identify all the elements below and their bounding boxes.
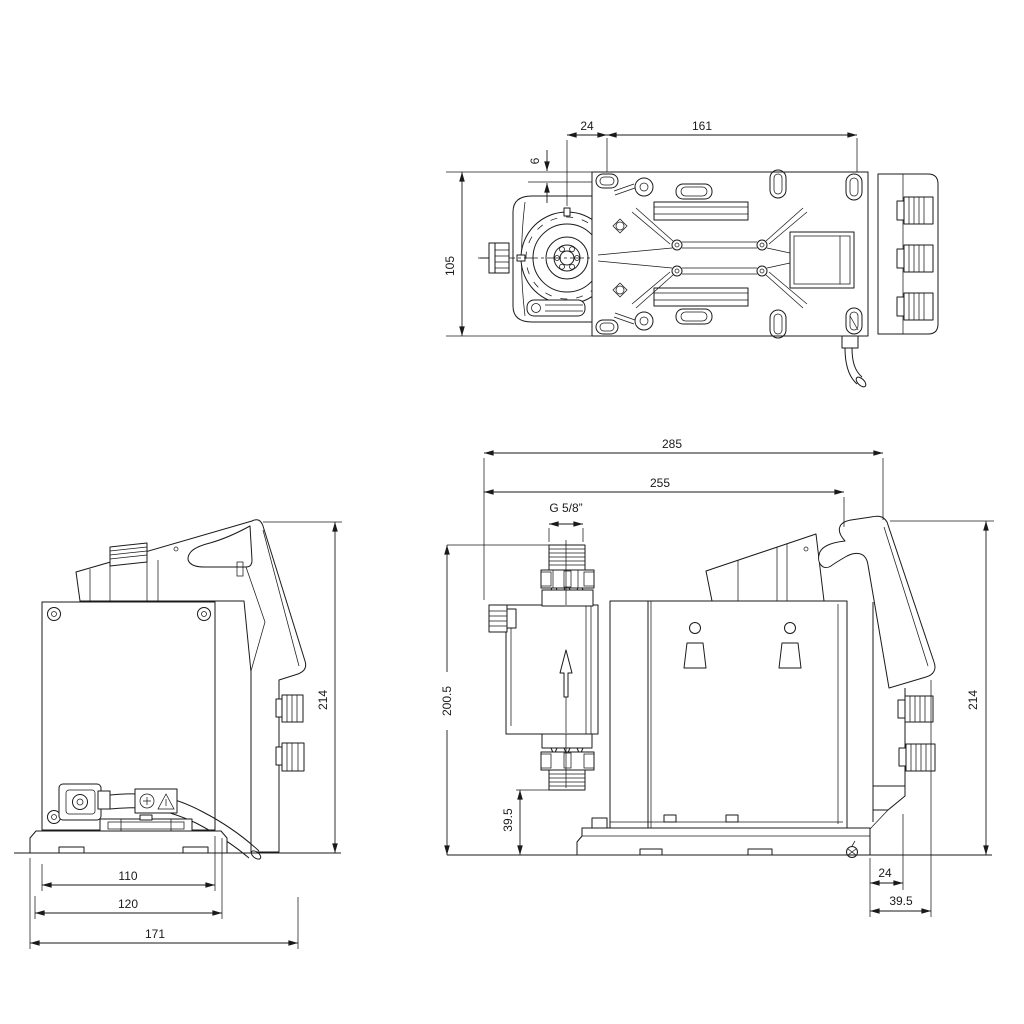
drawing-canvas: 24 161 6 105 xyxy=(0,0,1024,1024)
dim-label-side-thread: G 5/8” xyxy=(549,501,582,515)
dim-label-side-39-5-right: 39.5 xyxy=(889,894,913,908)
warning-label xyxy=(135,789,177,813)
dim-label-side-285: 285 xyxy=(662,437,682,451)
control-end-cap xyxy=(878,174,938,334)
dim-label-back-110: 110 xyxy=(118,869,137,883)
dim-label-top-6: 6 xyxy=(528,157,542,164)
cable-gland-top-1 xyxy=(897,197,933,224)
dim-label-side-39-5-left: 39.5 xyxy=(501,808,515,832)
background xyxy=(0,0,1024,1024)
pump-body-side xyxy=(610,601,847,828)
cable-gland-top-3 xyxy=(897,293,933,320)
dim-label-top-24: 24 xyxy=(580,119,594,133)
clamp-bracket xyxy=(527,300,585,316)
cable-gland-top-2 xyxy=(897,245,933,272)
dim-label-side-24: 24 xyxy=(878,866,892,880)
dim-label-top-105: 105 xyxy=(443,256,457,276)
dim-label-side-200-5: 200.5 xyxy=(440,686,454,716)
cable-gland-side-1 xyxy=(898,696,933,722)
dim-label-back-120: 120 xyxy=(118,897,138,911)
dim-label-back-214: 214 xyxy=(316,690,330,710)
dim-label-side-214: 214 xyxy=(966,690,980,710)
pump-dimensional-drawing: 24 161 6 105 xyxy=(0,0,1024,1024)
dim-label-back-171: 171 xyxy=(145,927,165,941)
vent-valve-knob xyxy=(489,605,516,632)
dim-label-side-255: 255 xyxy=(650,476,670,490)
base-plate xyxy=(592,170,868,338)
dim-label-top-161: 161 xyxy=(692,119,712,133)
